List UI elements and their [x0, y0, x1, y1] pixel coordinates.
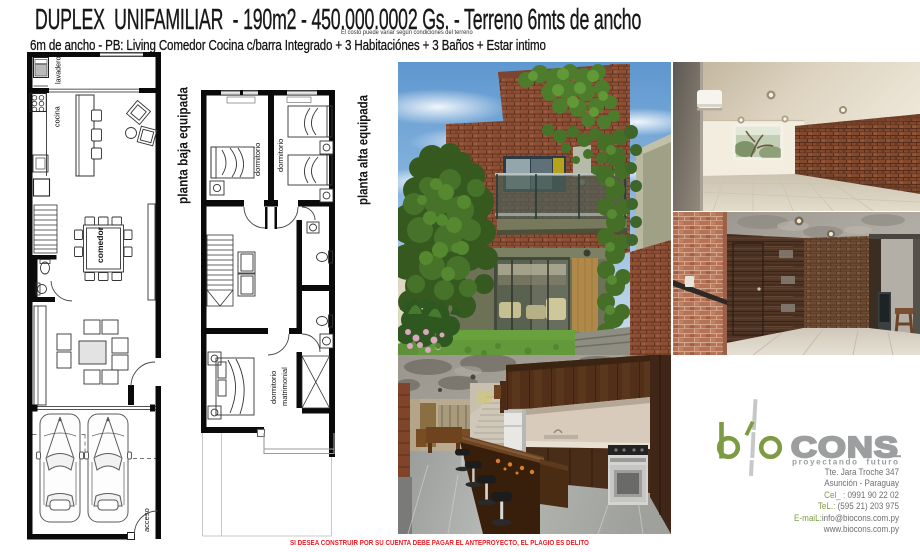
svg-text:proyectando futuro: proyectando futuro — [792, 458, 898, 467]
svg-text:acceso: acceso — [142, 508, 151, 532]
svg-text:dormitorio: dormitorio — [276, 139, 285, 172]
svg-text:planta alta equipada: planta alta equipada — [355, 95, 371, 205]
svg-text:comedor: comedor — [95, 226, 105, 263]
svg-text:matrimonial: matrimonial — [280, 367, 289, 406]
svg-text:dormitorio: dormitorio — [269, 371, 278, 404]
svg-text:lavadero: lavadero — [54, 56, 63, 84]
svg-text:dormitorio: dormitorio — [253, 143, 262, 176]
svg-text:planta baja equipada: planta baja equipada — [175, 87, 191, 204]
svg-text:cocina: cocina — [53, 106, 62, 127]
